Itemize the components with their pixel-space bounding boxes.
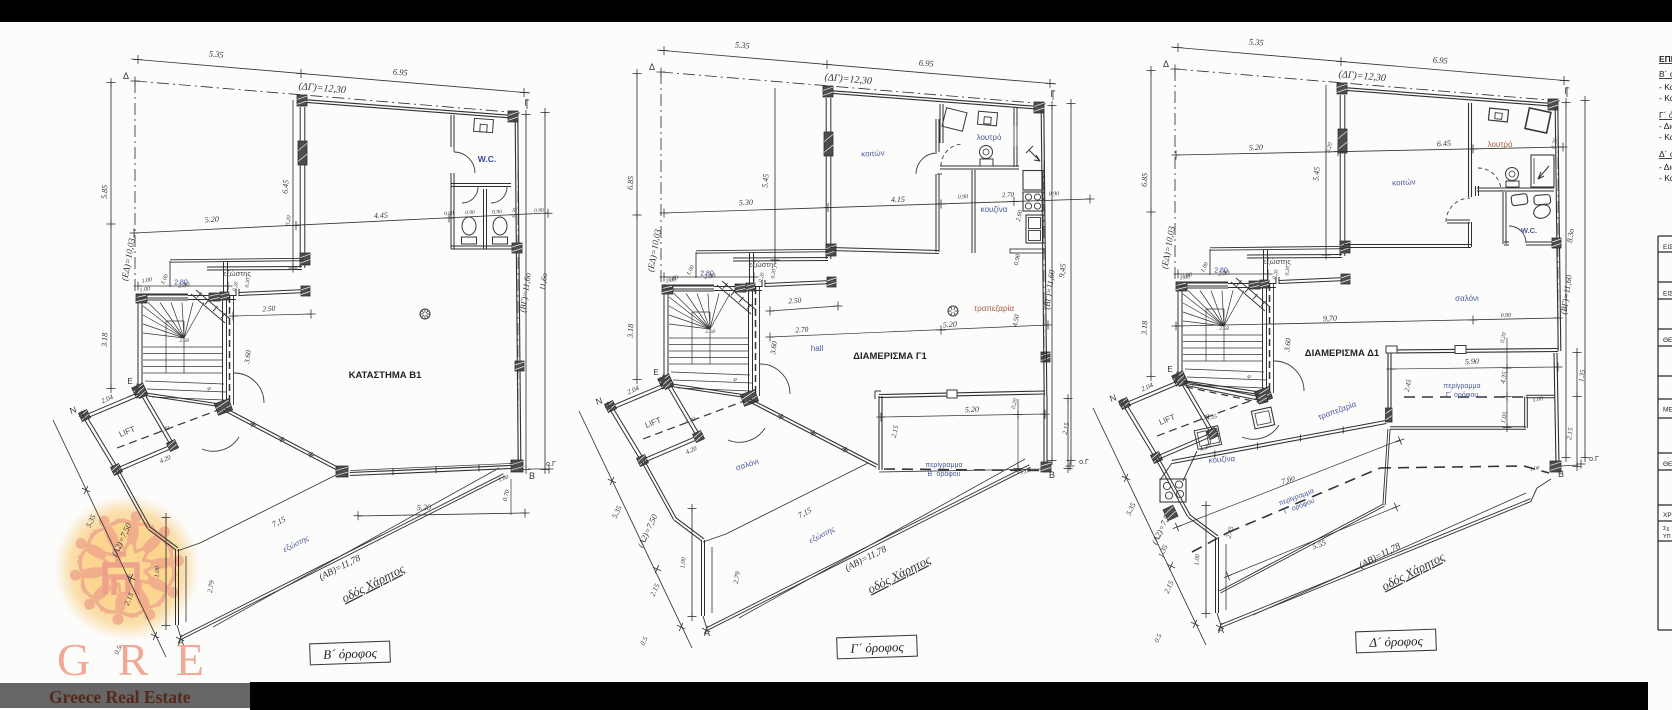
svg-text:9,70: 9,70 <box>1323 314 1337 323</box>
svg-text:ΥΠ: ΥΠ <box>1663 534 1671 540</box>
svg-text:Β´ ορόφου: Β´ ορόφου <box>928 470 961 478</box>
svg-text:- Κατοικία 40 τ.μ.: - Κατοικία 40 τ.μ. <box>1659 173 1672 183</box>
svg-text:4.45: 4.45 <box>374 211 388 221</box>
svg-text:2.80: 2.80 <box>704 272 717 280</box>
svg-text:0.90: 0.90 <box>465 210 475 217</box>
svg-text:περίγραμμα: περίγραμμα <box>1443 382 1480 390</box>
svg-text:ο.Γ: ο.Γ <box>1079 459 1089 466</box>
svg-text:5.45: 5.45 <box>760 173 770 188</box>
svg-text:εξώστης: εξώστης <box>223 269 251 278</box>
svg-text:λουτρό: λουτρό <box>977 133 1002 142</box>
svg-text:5.35: 5.35 <box>734 39 750 50</box>
svg-text:Β: Β <box>1558 469 1564 479</box>
svg-text:σαλόνι: σαλόνι <box>1455 294 1479 303</box>
svg-text:Ε: Ε <box>1167 365 1172 374</box>
svg-text:hall: hall <box>811 344 824 353</box>
svg-text:Ε: Ε <box>653 368 658 377</box>
svg-text:2.50: 2.50 <box>788 296 802 306</box>
svg-text:Γ´ όροφος: Γ´ όροφος <box>849 639 904 656</box>
svg-text:2.80: 2.80 <box>178 281 191 289</box>
svg-text:ΧΡΗ: ΧΡΗ <box>1663 512 1672 519</box>
svg-text:6.45: 6.45 <box>280 179 290 194</box>
svg-text:ΘΕΣ: ΘΕΣ <box>1663 461 1672 468</box>
svg-text:Σχ: Σχ <box>1663 526 1669 532</box>
svg-text:Β´ όροφος: Β´ όροφος <box>323 645 378 662</box>
svg-text:6.85: 6.85 <box>1140 173 1150 187</box>
svg-text:1.00: 1.00 <box>680 556 688 569</box>
svg-text:3.18: 3.18 <box>100 333 110 348</box>
svg-text:5.35: 5.35 <box>208 48 224 59</box>
svg-text:2.70: 2.70 <box>795 325 809 335</box>
svg-text:κοιτών: κοιτών <box>861 148 885 158</box>
svg-text:ΘΕΣ: ΘΕΣ <box>1663 337 1672 344</box>
svg-text:Β´ όροφος:: Β´ όροφος: <box>1659 69 1672 79</box>
svg-text:G R E: G R E <box>57 634 212 685</box>
svg-text:- Κατάστημα 110 τ.μ.: - Κατάστημα 110 τ.μ. <box>1659 82 1672 92</box>
svg-text:2.58: 2.58 <box>179 338 189 344</box>
svg-text:ΜΕΛ: ΜΕΛ <box>1663 407 1672 414</box>
svg-text:ΕΠΙΦΑΝΕΙΕΣ: ΕΠΙΦΑΝΕΙΕΣ <box>1659 54 1672 64</box>
svg-text:0.90: 0.90 <box>1049 191 1060 197</box>
svg-text:ο.Γ: ο.Γ <box>546 461 556 468</box>
svg-text:5.90: 5.90 <box>1465 357 1479 366</box>
svg-text:6.95: 6.95 <box>392 66 408 77</box>
svg-text:ΔΙΑΜΕΡΙΣΜΑ Γ1: ΔΙΑΜΕΡΙΣΜΑ Γ1 <box>853 351 927 362</box>
svg-text:Β: Β <box>529 471 535 481</box>
svg-text:- Κατάστημα 45 τ.μ.: - Κατάστημα 45 τ.μ. <box>1659 93 1672 103</box>
svg-text:Δ: Δ <box>123 71 129 81</box>
svg-text:W.C.: W.C. <box>478 154 496 164</box>
svg-text:5.45: 5.45 <box>1311 166 1321 181</box>
svg-text:κουζίνα: κουζίνα <box>981 205 1008 214</box>
svg-text:6.85: 6.85 <box>626 176 636 190</box>
svg-text:εξώστης: εξώστης <box>1263 257 1291 266</box>
svg-text:5.20: 5.20 <box>965 405 979 414</box>
svg-text:ο.Γ: ο.Γ <box>1589 456 1599 463</box>
svg-text:0.90: 0.90 <box>534 208 544 215</box>
svg-text:0.90: 0.90 <box>958 194 969 200</box>
svg-text:6.95: 6.95 <box>918 57 934 68</box>
svg-text:1.00: 1.00 <box>154 565 162 578</box>
svg-text:εξώστης: εξώστης <box>749 260 777 269</box>
svg-text:- Διαμέρισμα 105 τ.μ.: - Διαμέρισμα 105 τ.μ. <box>1659 162 1672 172</box>
svg-text:Δ´ όροφος:: Δ´ όροφος: <box>1659 149 1672 159</box>
svg-text:5.35: 5.35 <box>1248 36 1264 47</box>
svg-text:5.20: 5.20 <box>1249 143 1263 152</box>
svg-text:5.20: 5.20 <box>943 320 957 330</box>
svg-text:4.15: 4.15 <box>891 195 905 204</box>
svg-text:Greece Real Estate: Greece Real Estate <box>49 687 191 707</box>
svg-text:Δ: Δ <box>649 62 655 72</box>
svg-text:ΔΙΑΜΕΡΙΣΜΑ Δ1: ΔΙΑΜΕΡΙΣΜΑ Δ1 <box>1305 348 1380 359</box>
svg-text:Γ´ όροφος:: Γ´ όροφος: <box>1659 110 1672 120</box>
svg-text:5.20: 5.20 <box>417 503 431 512</box>
svg-text:6.95: 6.95 <box>1432 54 1448 65</box>
svg-text:0.90: 0.90 <box>492 209 502 216</box>
svg-text:λουτρό: λουτρό <box>1488 140 1513 149</box>
svg-text:3.18: 3.18 <box>626 324 636 339</box>
svg-text:ΚΑΤΑΣΤΗΜΑ Β1: ΚΑΤΑΣΤΗΜΑ Β1 <box>349 370 423 381</box>
svg-text:κοιτών: κοιτών <box>1392 177 1416 187</box>
svg-text:2.80: 2.80 <box>1218 269 1231 277</box>
svg-text:W.C.: W.C. <box>1521 226 1537 235</box>
svg-text:2.58: 2.58 <box>1219 326 1229 332</box>
svg-text:τραπεζαρία: τραπεζαρία <box>974 304 1014 313</box>
svg-text:2.50: 2.50 <box>262 304 276 314</box>
svg-text:5.85: 5.85 <box>100 185 110 199</box>
svg-text:3.18: 3.18 <box>1140 321 1150 336</box>
svg-text:0.90: 0.90 <box>1501 313 1512 319</box>
svg-text:Δ´ όροφος: Δ´ όροφος <box>1368 633 1424 650</box>
svg-text:- Κατοικία 40 τ.μ.: - Κατοικία 40 τ.μ. <box>1659 132 1672 142</box>
svg-text:Ε: Ε <box>127 377 132 386</box>
svg-text:Γ´ ορόφου: Γ´ ορόφου <box>1446 391 1478 399</box>
svg-text:ΕΙΣ: ΕΙΣ <box>1663 244 1672 251</box>
svg-text:Β: Β <box>1049 470 1055 480</box>
svg-text:2.58: 2.58 <box>705 329 715 335</box>
svg-text:5.30: 5.30 <box>739 198 753 207</box>
svg-text:περίγραμμα: περίγραμμα <box>925 461 962 469</box>
svg-text:ΕΙΣ: ΕΙΣ <box>1663 291 1672 298</box>
svg-text:Δ: Δ <box>1163 59 1169 69</box>
svg-text:0.90: 0.90 <box>444 211 454 218</box>
svg-text:2.70: 2.70 <box>1002 191 1015 199</box>
svg-text:6.45: 6.45 <box>1437 139 1451 148</box>
svg-text:- Διαμέρισμα 102 τ.μ.: - Διαμέρισμα 102 τ.μ. <box>1659 121 1672 131</box>
svg-text:5.20: 5.20 <box>205 215 219 225</box>
svg-text:1.00: 1.00 <box>1194 553 1202 566</box>
